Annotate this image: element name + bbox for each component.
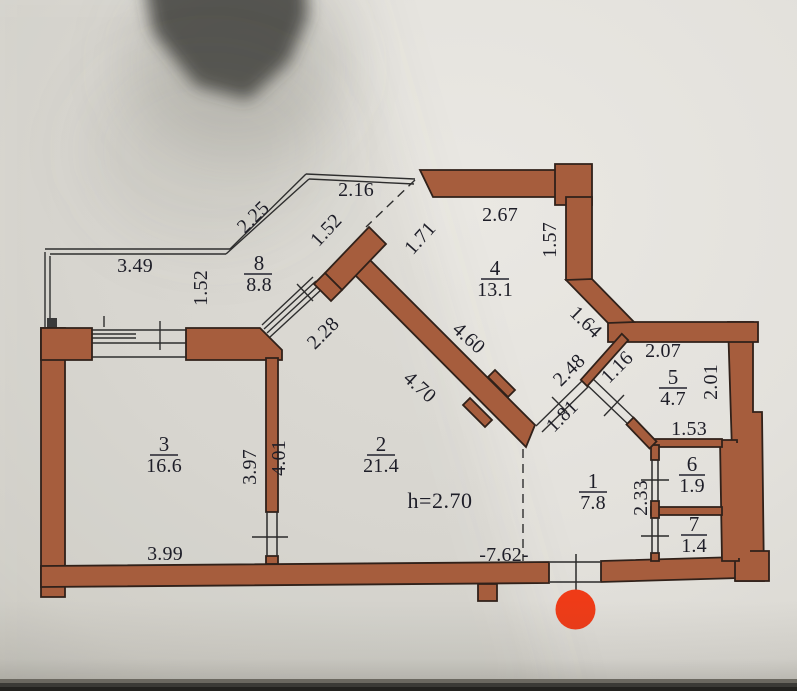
svg-text:13.1: 13.1 [477, 279, 513, 301]
svg-text:1.52: 1.52 [190, 270, 212, 306]
svg-text:1.53: 1.53 [671, 418, 707, 440]
svg-text:h=2.70: h=2.70 [408, 488, 473, 513]
svg-text:2.16: 2.16 [338, 179, 374, 201]
svg-text:16.6: 16.6 [146, 455, 182, 477]
svg-text:8.8: 8.8 [246, 274, 272, 296]
svg-text:4.01: 4.01 [268, 440, 290, 476]
svg-text:4: 4 [490, 256, 501, 280]
svg-text:3: 3 [159, 432, 170, 456]
svg-text:3.97: 3.97 [239, 449, 261, 485]
svg-text:2: 2 [376, 432, 387, 456]
svg-text:-7.62-: -7.62- [479, 544, 529, 566]
svg-text:2.67: 2.67 [482, 204, 518, 226]
svg-text:4.7: 4.7 [660, 388, 686, 410]
svg-text:2.01: 2.01 [700, 364, 722, 400]
svg-text:3.49: 3.49 [117, 255, 153, 277]
svg-text:21.4: 21.4 [363, 455, 399, 477]
svg-text:1.57: 1.57 [539, 222, 561, 258]
svg-text:7: 7 [689, 512, 700, 536]
svg-text:6: 6 [687, 452, 698, 476]
svg-text:1.9: 1.9 [679, 475, 705, 497]
svg-text:1: 1 [588, 469, 599, 493]
svg-text:1.4: 1.4 [681, 535, 707, 557]
svg-text:3.99: 3.99 [147, 543, 183, 565]
svg-text:2.07: 2.07 [645, 340, 681, 362]
svg-text:8: 8 [254, 251, 265, 275]
svg-text:5: 5 [668, 365, 679, 389]
svg-text:2.33: 2.33 [630, 480, 652, 516]
svg-text:7.8: 7.8 [580, 492, 606, 514]
